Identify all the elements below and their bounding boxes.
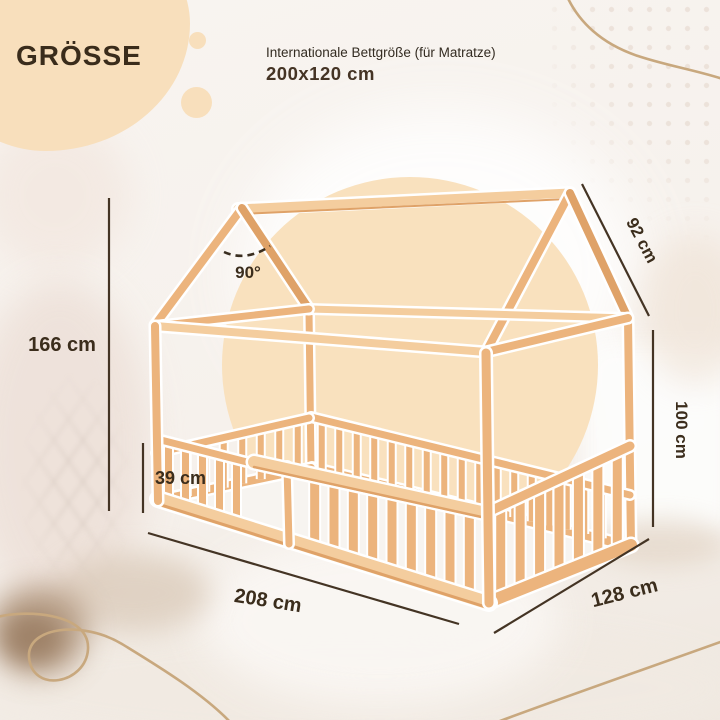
product-size-infographic: GRÖSSE Internationale Bettgröße (für Mat… <box>0 0 720 720</box>
dimension-side-height: 100 cm <box>653 330 691 527</box>
house-bed-illustration: 166 cm 39 cm 92 cm 100 cm 208 cm 128 cm … <box>0 0 720 720</box>
dimension-total-height: 166 cm <box>28 198 109 511</box>
length-label: 208 cm <box>233 585 303 617</box>
roof-angle-label: 90° <box>235 263 261 282</box>
roof-slope-label: 92 cm <box>622 215 661 266</box>
side-height-label: 100 cm <box>672 401 691 459</box>
fence-height-label: 39 cm <box>155 468 206 488</box>
total-height-label: 166 cm <box>28 334 96 356</box>
width-label: 128 cm <box>589 574 660 612</box>
